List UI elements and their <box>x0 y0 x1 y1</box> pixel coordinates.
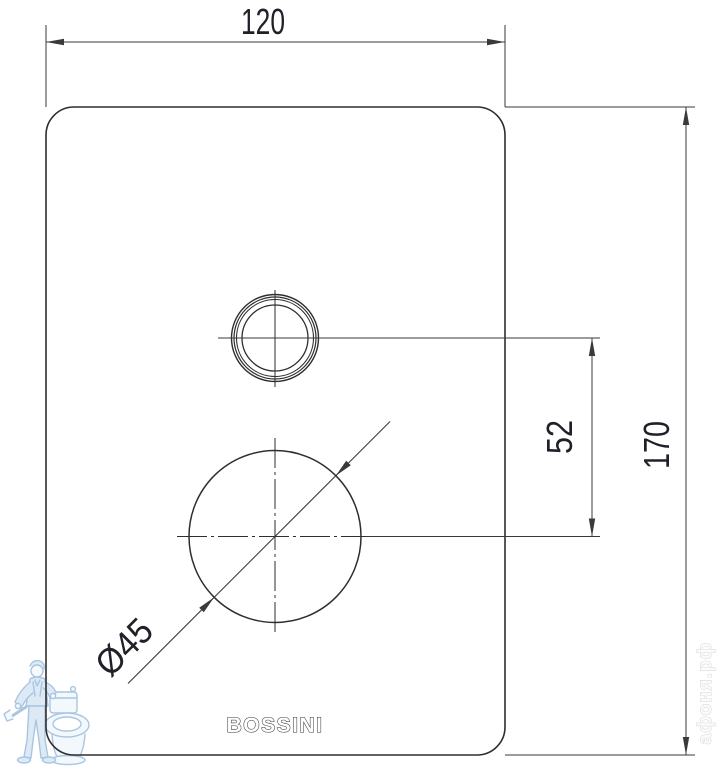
dim-width-arrow-right <box>487 39 505 45</box>
dim-height-arrow-top <box>683 107 689 125</box>
dim-height: 170 <box>505 107 695 755</box>
dim-diameter: Ø45 <box>87 422 390 685</box>
dim-spacing-arrow-top <box>589 338 595 356</box>
plumber-figure-icon <box>4 661 56 763</box>
dim-width-arrow-left <box>46 39 64 45</box>
dim-spacing-label: 52 <box>539 420 580 454</box>
dim-spacing-arrow-bottom <box>589 519 595 537</box>
technical-drawing-canvas: афоня.рф Ø45 120 170 <box>0 0 725 771</box>
dim-height-label: 170 <box>636 421 677 469</box>
dimension-drawing-svg: афоня.рф Ø45 120 170 <box>0 0 725 771</box>
brand-logo-text: BOSSINI <box>227 714 324 737</box>
site-watermark-text: афоня.рф <box>695 642 716 745</box>
dim-width-label: 120 <box>241 1 285 42</box>
diameter-leader-line <box>128 422 390 684</box>
dim-height-arrow-bottom <box>683 737 689 755</box>
dim-width: 120 <box>46 1 505 107</box>
dim-diameter-label: Ø45 <box>87 610 161 684</box>
